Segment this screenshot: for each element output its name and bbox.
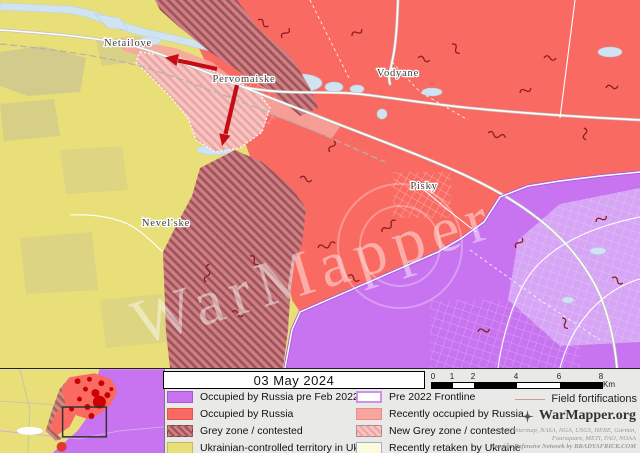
swatch-occupied <box>167 408 193 420</box>
main-map[interactable]: WarMapper Netailove Pervomaiske Vodyane … <box>0 0 640 368</box>
label-pisky: Pisky <box>410 181 437 192</box>
credits-line: Russian Defensive Network by BRADYAFRICK… <box>491 443 636 451</box>
credits-line: Foursquare, METI, FAO, NOAA <box>491 435 636 443</box>
scale-tick: 2 <box>471 372 475 381</box>
swatch-frontline <box>356 391 382 403</box>
credits-line: Esri, Intermap, NASA, NGA, USGS, HERE, G… <box>491 427 636 435</box>
fortification-line-sample <box>515 399 545 400</box>
legend-item-frontline: Pre 2022 Frontline <box>356 390 475 404</box>
legend-item-recent-occupied: Recently occupied by Russia <box>356 407 524 421</box>
warmapper-brand[interactable]: WarMapper.org <box>521 408 636 424</box>
legend-item-pre2022: Occupied by Russia pre Feb 2022 <box>167 390 359 404</box>
legend-item-greyzone: Grey zone / contested <box>167 424 303 438</box>
swatch-pre2022 <box>167 391 193 403</box>
swatch-recent-occupied <box>356 408 382 420</box>
scale-tick: 6 <box>557 372 561 381</box>
scale-tick: 0 <box>431 372 435 381</box>
site-name: WarMapper.org <box>539 408 636 424</box>
swatch-ukraine <box>167 442 193 453</box>
inset-map[interactable] <box>0 369 165 453</box>
label-netailove: Netailove <box>104 38 152 49</box>
warmapper-screenshot: WarMapper Netailove Pervomaiske Vodyane … <box>0 0 640 453</box>
legend-panel: 03 May 2024 Occupied by Russia pre Feb 2… <box>0 368 640 453</box>
label-vodyane: Vodyane <box>377 68 419 79</box>
legend-label: Field fortifications <box>551 393 637 405</box>
swatch-greyzone <box>167 425 193 437</box>
swatch-new-greyzone <box>356 425 382 437</box>
scale-tick: 1 <box>450 372 454 381</box>
legend-item-fortifications: Field fortifications <box>515 393 637 405</box>
compass-icon <box>521 410 534 423</box>
legend-item-occupied: Occupied by Russia <box>167 407 293 421</box>
legend-item-ukraine: Ukrainian-controlled territory in Ukrain… <box>167 441 382 453</box>
scale-unit: Km <box>603 380 615 389</box>
swatch-retaken <box>356 442 382 453</box>
scale-bar: 0 1 2 4 6 8 Km <box>431 372 611 390</box>
legend-label: Occupied by Russia pre Feb 2022 <box>200 391 359 403</box>
legend-label: Pre 2022 Frontline <box>389 391 475 403</box>
legend-label: Grey zone / contested <box>200 425 303 437</box>
scale-tick: 4 <box>514 372 518 381</box>
legend-label: Ukrainian-controlled territory in Ukrain… <box>200 442 382 453</box>
legend-label: Recently occupied by Russia <box>389 408 524 420</box>
label-pervomaiske: Pervomaiske <box>212 74 275 85</box>
map-credits: Esri, Intermap, NASA, NGA, USGS, HERE, G… <box>491 427 636 451</box>
legend-label: Occupied by Russia <box>200 408 293 420</box>
date-text: 03 May 2024 <box>254 373 335 388</box>
label-nevelske: Nevel'ske <box>142 218 190 229</box>
map-date: 03 May 2024 <box>163 371 425 389</box>
